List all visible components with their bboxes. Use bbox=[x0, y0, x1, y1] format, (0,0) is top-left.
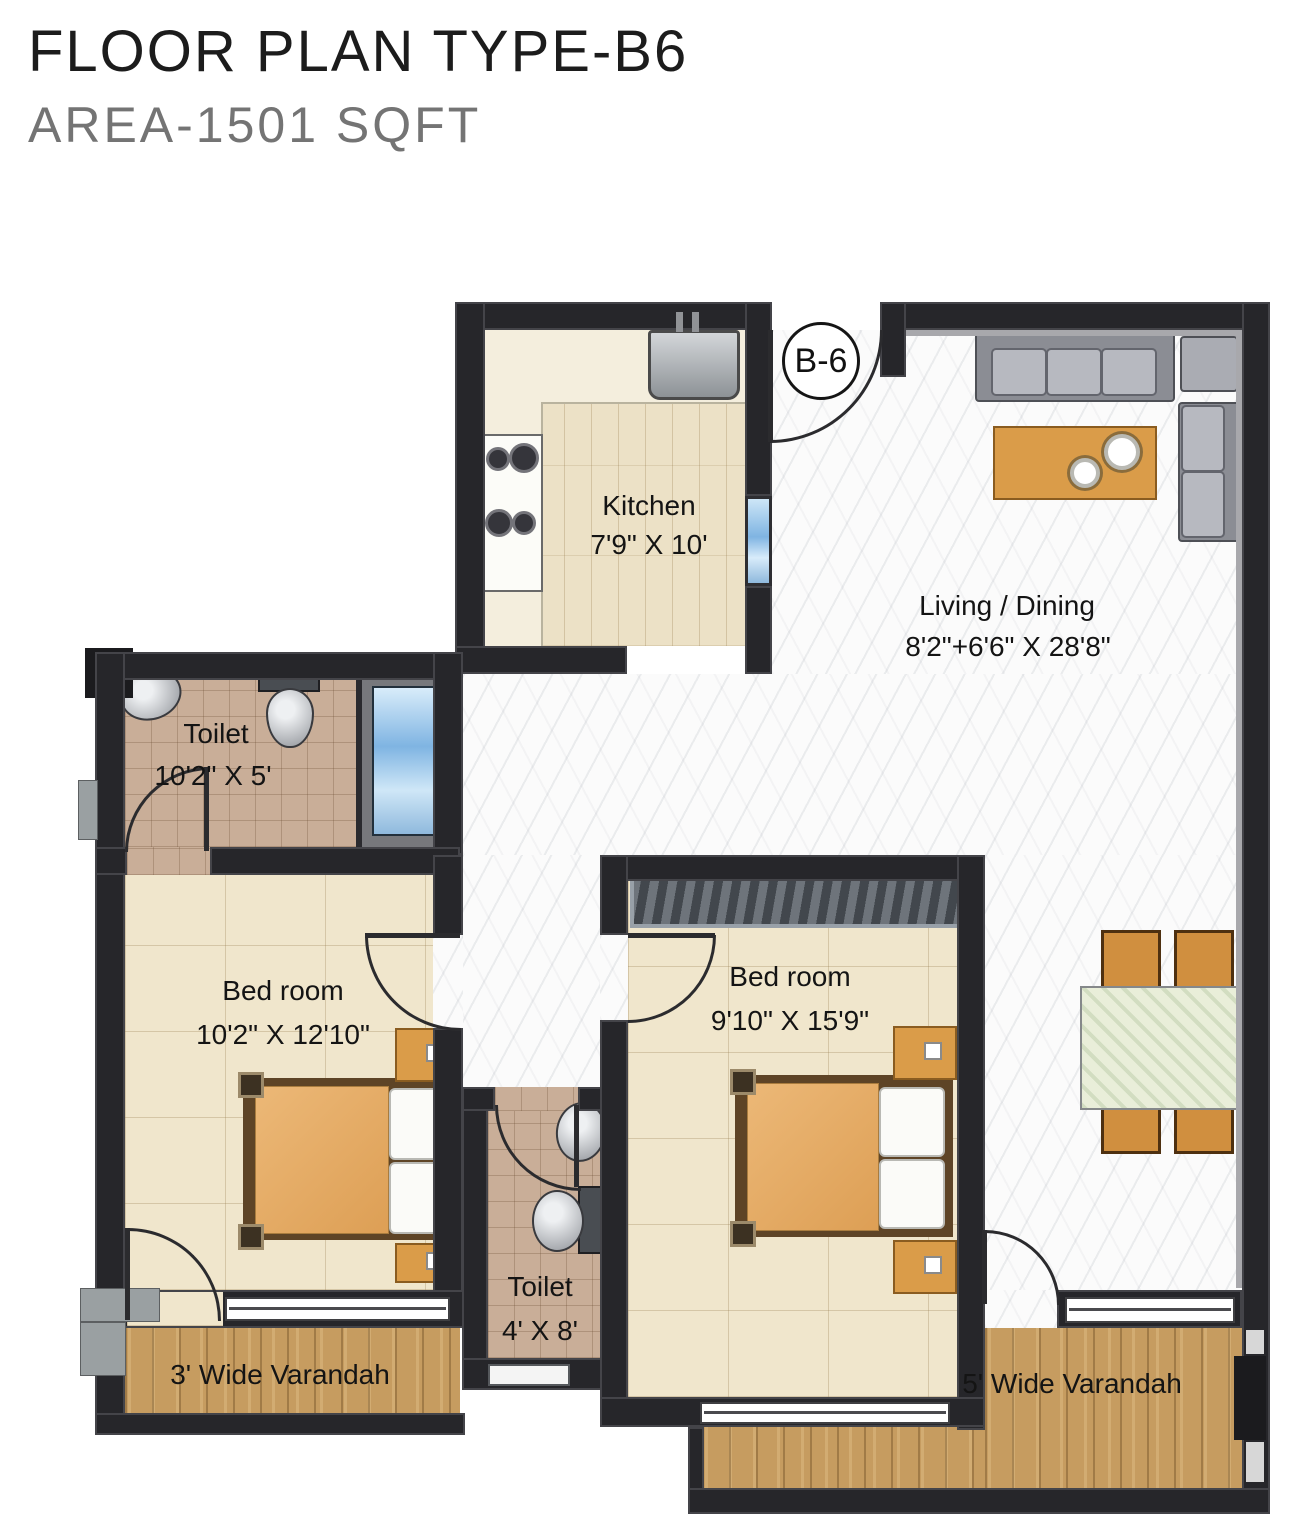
room-label-kitchen: Kitchen bbox=[602, 490, 695, 522]
kitchen-window bbox=[745, 496, 772, 586]
wall bbox=[455, 302, 770, 330]
room-size-toilet-common: 4' X 8' bbox=[502, 1315, 578, 1347]
wall bbox=[462, 1087, 488, 1390]
bedroom-left-door-leaf bbox=[365, 933, 460, 938]
stove-burner bbox=[486, 447, 510, 471]
bed-blanket bbox=[747, 1083, 879, 1231]
stove-burner bbox=[509, 443, 539, 473]
hall-floor-mid bbox=[463, 674, 1242, 855]
table-bowl bbox=[1070, 458, 1100, 488]
wall bbox=[455, 646, 627, 674]
room-label-bedroom-right: Bed room bbox=[729, 961, 850, 993]
varandah-right-floor-vertical bbox=[985, 1328, 1242, 1488]
wall-slot bbox=[1246, 1330, 1264, 1354]
room-label-varandah-left: 3' Wide Varandah bbox=[170, 1359, 390, 1391]
door-gap-bedroom-right bbox=[600, 935, 628, 1020]
dining-table bbox=[1080, 986, 1248, 1110]
bedroom-left-varandah-door-leaf bbox=[125, 1228, 130, 1320]
wall bbox=[433, 1028, 463, 1303]
nightstand-knob bbox=[924, 1042, 942, 1060]
kitchen-sink bbox=[648, 330, 740, 400]
sofa-cushion bbox=[1101, 348, 1157, 396]
varandah-right-floor-horizontal bbox=[702, 1427, 985, 1488]
wall bbox=[600, 855, 985, 881]
bed-pillow bbox=[879, 1087, 945, 1157]
wall bbox=[688, 1488, 1270, 1514]
bed-post bbox=[730, 1069, 756, 1095]
wall bbox=[210, 847, 460, 875]
wall bbox=[880, 302, 1270, 330]
wall bbox=[455, 302, 485, 674]
wall bbox=[433, 855, 463, 935]
room-label-varandah-right: 5' Wide Varandah bbox=[962, 1368, 1182, 1400]
bedroom-left-window bbox=[225, 1297, 450, 1321]
hall-floor-corridor bbox=[462, 855, 600, 1087]
wall bbox=[957, 855, 985, 1430]
toilet-common-door-leaf bbox=[574, 1105, 579, 1187]
floor-plan: B-6 Kitchen 7'9" X 10' Living / Dining 8… bbox=[0, 0, 1293, 1525]
living-window bbox=[1065, 1297, 1235, 1323]
bed-post bbox=[238, 1224, 264, 1250]
bed-post bbox=[730, 1221, 756, 1247]
armchair bbox=[1180, 336, 1238, 392]
toilet-vent-sill bbox=[488, 1364, 570, 1386]
nightstand-knob bbox=[924, 1256, 942, 1274]
wall bbox=[600, 855, 628, 935]
wall bbox=[880, 302, 906, 377]
living-varandah-door-leaf bbox=[982, 1230, 987, 1304]
room-size-bedroom-left: 10'2" X 12'10" bbox=[196, 1019, 370, 1051]
room-size-living-dining: 8'2"+6'6" X 28'8" bbox=[905, 631, 1110, 663]
wall-trim bbox=[906, 330, 1236, 336]
wall-slot bbox=[1246, 1442, 1264, 1482]
wall bbox=[433, 652, 463, 855]
room-label-living-dining: Living / Dining bbox=[919, 590, 1095, 622]
wall bbox=[688, 1427, 704, 1492]
bedroom-right-door-leaf bbox=[628, 933, 715, 938]
stove-burner bbox=[485, 509, 513, 537]
wall bbox=[95, 652, 460, 680]
wall bbox=[462, 1087, 495, 1111]
room-label-bedroom-left: Bed room bbox=[222, 975, 343, 1007]
bathtub-water bbox=[372, 686, 436, 836]
room-size-bedroom-right: 9'10" X 15'9" bbox=[711, 1005, 869, 1037]
bed-post bbox=[238, 1072, 264, 1098]
room-size-toilet-main: 10'2" X 5' bbox=[154, 760, 271, 792]
sofa-cushion bbox=[1181, 405, 1225, 472]
bed-blanket bbox=[255, 1086, 389, 1234]
varandah-pillar bbox=[1234, 1356, 1266, 1440]
room-label-toilet-common: Toilet bbox=[507, 1271, 572, 1303]
wall bbox=[600, 1020, 628, 1427]
varandah-step bbox=[80, 1322, 126, 1376]
sink-faucet bbox=[676, 312, 683, 332]
room-size-kitchen: 7'9" X 10' bbox=[590, 529, 707, 561]
wall bbox=[95, 1413, 465, 1435]
sofa-cushion bbox=[1181, 471, 1225, 538]
sink-faucet bbox=[692, 312, 699, 332]
unit-badge: B-6 bbox=[782, 322, 860, 400]
table-bowl bbox=[1104, 434, 1140, 470]
bed-pillow bbox=[879, 1159, 945, 1229]
stove-burner bbox=[512, 511, 536, 535]
wall-pillar bbox=[78, 780, 98, 840]
bedroom-right-window bbox=[700, 1402, 950, 1424]
wall bbox=[745, 586, 772, 674]
room-label-toilet-main: Toilet bbox=[183, 718, 248, 750]
sofa-cushion bbox=[991, 348, 1047, 396]
wc-toilet bbox=[532, 1190, 584, 1252]
sofa-cushion bbox=[1046, 348, 1102, 396]
wall bbox=[95, 847, 127, 875]
entrance-door-leaf bbox=[768, 330, 773, 442]
wall-trim bbox=[1236, 330, 1242, 1288]
